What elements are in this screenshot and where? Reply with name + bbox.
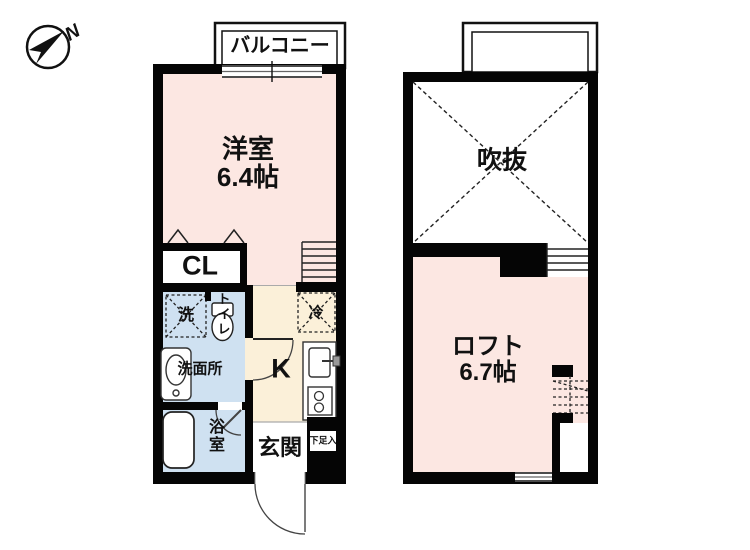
floor-plan-drawing: N xyxy=(0,0,750,550)
kitchen-door-gap xyxy=(245,338,253,380)
closet-label: CL xyxy=(182,253,218,280)
western-room-label: 洋室 xyxy=(222,136,274,162)
inner-wall xyxy=(245,285,253,482)
ladder-wall-stub-top xyxy=(552,365,573,377)
loft-wall-corner xyxy=(500,243,547,277)
kitchen-sink-icon xyxy=(309,348,330,377)
floor-plan-canvas: N xyxy=(0,0,750,550)
fridge-label: 冷 xyxy=(308,306,323,321)
bathroom-label: 浴室 xyxy=(206,418,222,454)
balcony-label: バルコニー xyxy=(230,36,330,56)
open-void-over-entrance xyxy=(560,423,588,472)
shoebox-label: 下足入 xyxy=(309,437,336,446)
stair-wall-stub xyxy=(296,282,336,292)
void-label: 吹抜 xyxy=(477,149,527,174)
loft-label: ロフト xyxy=(452,335,524,359)
ladder-wall-stub-bottom xyxy=(552,413,573,423)
compass-icon: N xyxy=(27,20,85,68)
entrance-label: 玄関 xyxy=(258,437,302,459)
loft-area-upper xyxy=(413,257,500,279)
kitchen-label: K xyxy=(271,356,291,383)
loft-side-wall xyxy=(552,423,560,482)
bathroom-door-gap xyxy=(218,402,242,410)
western-room-area: 6.4帖 xyxy=(217,164,279,190)
kitchen-counter xyxy=(303,342,340,420)
loft-area-label: 6.7帖 xyxy=(459,361,516,385)
toilet-partition-stub xyxy=(205,292,211,301)
loft-window xyxy=(515,472,552,482)
loft-wall xyxy=(403,243,507,257)
balcony-upper xyxy=(463,23,597,72)
entrance-door-swing xyxy=(255,472,305,534)
toilet-label: トイレ xyxy=(217,292,230,337)
washroom-label: 洗面所 xyxy=(177,362,222,377)
staircase-floor2 xyxy=(547,243,588,277)
bathtub-icon xyxy=(163,412,194,468)
washer-label: 洗 xyxy=(178,308,194,324)
